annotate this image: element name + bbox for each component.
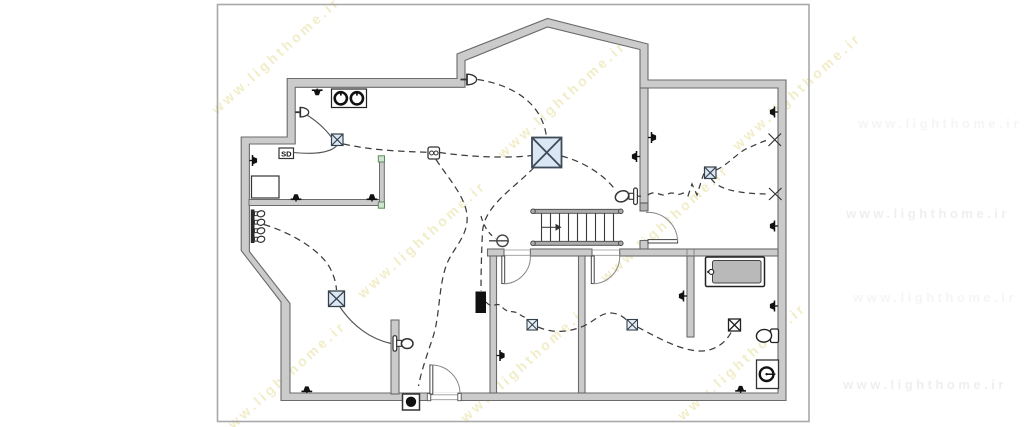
svg-text:www.lighthome.ir: www.lighthome.ir <box>456 301 592 426</box>
svg-text:SD: SD <box>281 149 292 158</box>
svg-text:www.lighthome.ir: www.lighthome.ir <box>852 290 1017 305</box>
svg-text:www.lighthome.ir: www.lighthome.ir <box>845 206 1010 221</box>
svg-text:www.lighthome.ir: www.lighthome.ir <box>207 0 343 118</box>
svg-text:www.lighthome.ir: www.lighthome.ir <box>728 29 864 154</box>
svg-text:www.lighthome.ir: www.lighthome.ir <box>857 116 1022 131</box>
svg-text:www.lighthome.ir: www.lighthome.ir <box>842 377 1007 392</box>
